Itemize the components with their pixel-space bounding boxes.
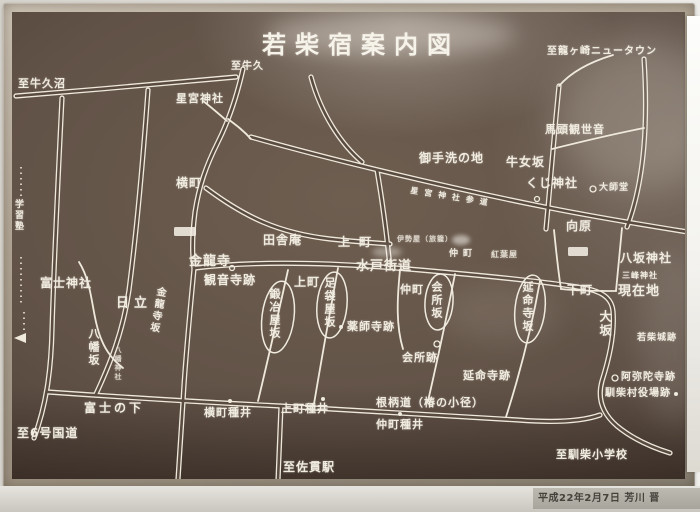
label-mito-kaido: 水戸街道 xyxy=(356,260,412,273)
sign-photo: 若柴宿案内図 至牛久沼 至牛久 星宮神社 至龍ヶ崎ニュータウン 馬頭観世音 御手… xyxy=(0,0,700,512)
arrow-left-icon xyxy=(14,333,26,343)
label-negara-michi: 根柄道（椿の小径） xyxy=(376,397,484,408)
label-gakushujuku: 学習塾 xyxy=(13,199,22,232)
label-kaisho-zaka: 会所坂 xyxy=(431,281,442,320)
footpath-dotted xyxy=(21,167,24,330)
label-enmeiji-ato: 延命寺跡 xyxy=(463,370,511,381)
label-iseya: 伊勢屋（旅籠） xyxy=(397,236,453,243)
label-wakashiba-joseki: 若柴城跡 xyxy=(637,334,677,343)
label-to-route6: 至6号国道 xyxy=(17,427,78,439)
label-kaisho-ato: 会所跡 xyxy=(402,352,438,363)
label-genzaichi: 現在地 xyxy=(618,285,660,298)
label-to-ushiku: 至牛久 xyxy=(231,62,264,72)
label-yokomachi: 横町 xyxy=(176,177,202,189)
label-kajiya-zaka: 鍛冶屋坂 xyxy=(269,288,280,340)
label-osaka: 大坂 xyxy=(599,310,611,338)
board-area: 若柴宿案内図 至牛久沼 至牛久 星宮神社 至龍ヶ崎ニュータウン 馬頭観世音 御手… xyxy=(12,12,685,479)
label-hachiman-jinja: 八幡神社 xyxy=(114,346,121,382)
label-hachiman-zaka: 八幡坂 xyxy=(88,328,99,367)
wall-highlight-strip xyxy=(687,16,700,472)
label-tabiya-zaka: 足袋屋坂 xyxy=(324,277,335,329)
label-mitsumine-jinja: 三峰神社 xyxy=(622,272,658,280)
label-to-ushikunuma: 至牛久沼 xyxy=(18,78,66,89)
label-nakamachi: 仲町 xyxy=(400,284,424,295)
label-kinryuji: 金龍寺 xyxy=(189,255,231,268)
label-kamimachi-tanei: 上町種井 xyxy=(281,403,329,414)
label-hoshinomiya-jinja: 星宮神社 xyxy=(176,93,224,104)
label-mitarashi-no-chi: 御手洗の地 xyxy=(419,152,484,164)
label-inakaan: 田舎庵 xyxy=(263,234,302,246)
map-title: 若柴宿案内図 xyxy=(262,33,460,57)
label-shimomachi: 下町 xyxy=(567,284,593,296)
date-plate: 平成22年2月7日 芳川 晋 xyxy=(533,488,700,509)
label-nakamachi-small: 仲町 xyxy=(449,250,477,259)
label-mukaihara: 向原 xyxy=(566,220,592,232)
label-to-narishiba-elementary: 至馴柴小学校 xyxy=(556,449,628,460)
credit-text: 平成22年2月7日 芳川 晋 xyxy=(538,493,660,504)
small-sign-patch xyxy=(568,247,588,256)
label-to-sanuki-station: 至佐貫駅 xyxy=(283,461,335,473)
label-kamimachi: 上町 xyxy=(294,276,320,288)
label-kamimachi-upper: 上町 xyxy=(338,236,380,248)
label-nakamachi-tanei: 仲町種井 xyxy=(376,419,424,430)
label-to-ryugasaki-newtown: 至龍ヶ崎ニュータウン xyxy=(547,47,657,57)
main-roads xyxy=(16,59,685,479)
label-yokomachi-tanei: 横町種井 xyxy=(204,407,252,418)
label-fuji-jinja: 富士神社 xyxy=(40,277,92,289)
label-daishido: 大師堂 xyxy=(599,184,629,193)
label-amidaji-ato: 阿弥陀寺跡 xyxy=(621,373,676,383)
label-kannonji-ato: 観音寺跡 xyxy=(204,274,256,286)
label-bato-kanzeon: 馬頭観世音 xyxy=(545,124,605,135)
label-yasaka-jinja: 八坂神社 xyxy=(620,252,672,264)
label-yakushiji-ato: 薬師寺跡 xyxy=(347,321,395,332)
label-fuji-no-shita: 富士の下 xyxy=(84,402,144,414)
label-momijiya: 紅葉屋 xyxy=(491,251,518,259)
label-hitachi: 日立 xyxy=(116,297,152,310)
small-sign-patch xyxy=(174,227,196,236)
label-narishiba-yakuba-ato: 馴柴村役場跡 xyxy=(605,389,671,399)
label-ushime-zaka: 牛女坂 xyxy=(506,156,545,168)
label-kuji-jinja: くじ神社 xyxy=(526,177,578,189)
label-enmeiji-zaka: 延命寺坂 xyxy=(522,281,533,333)
